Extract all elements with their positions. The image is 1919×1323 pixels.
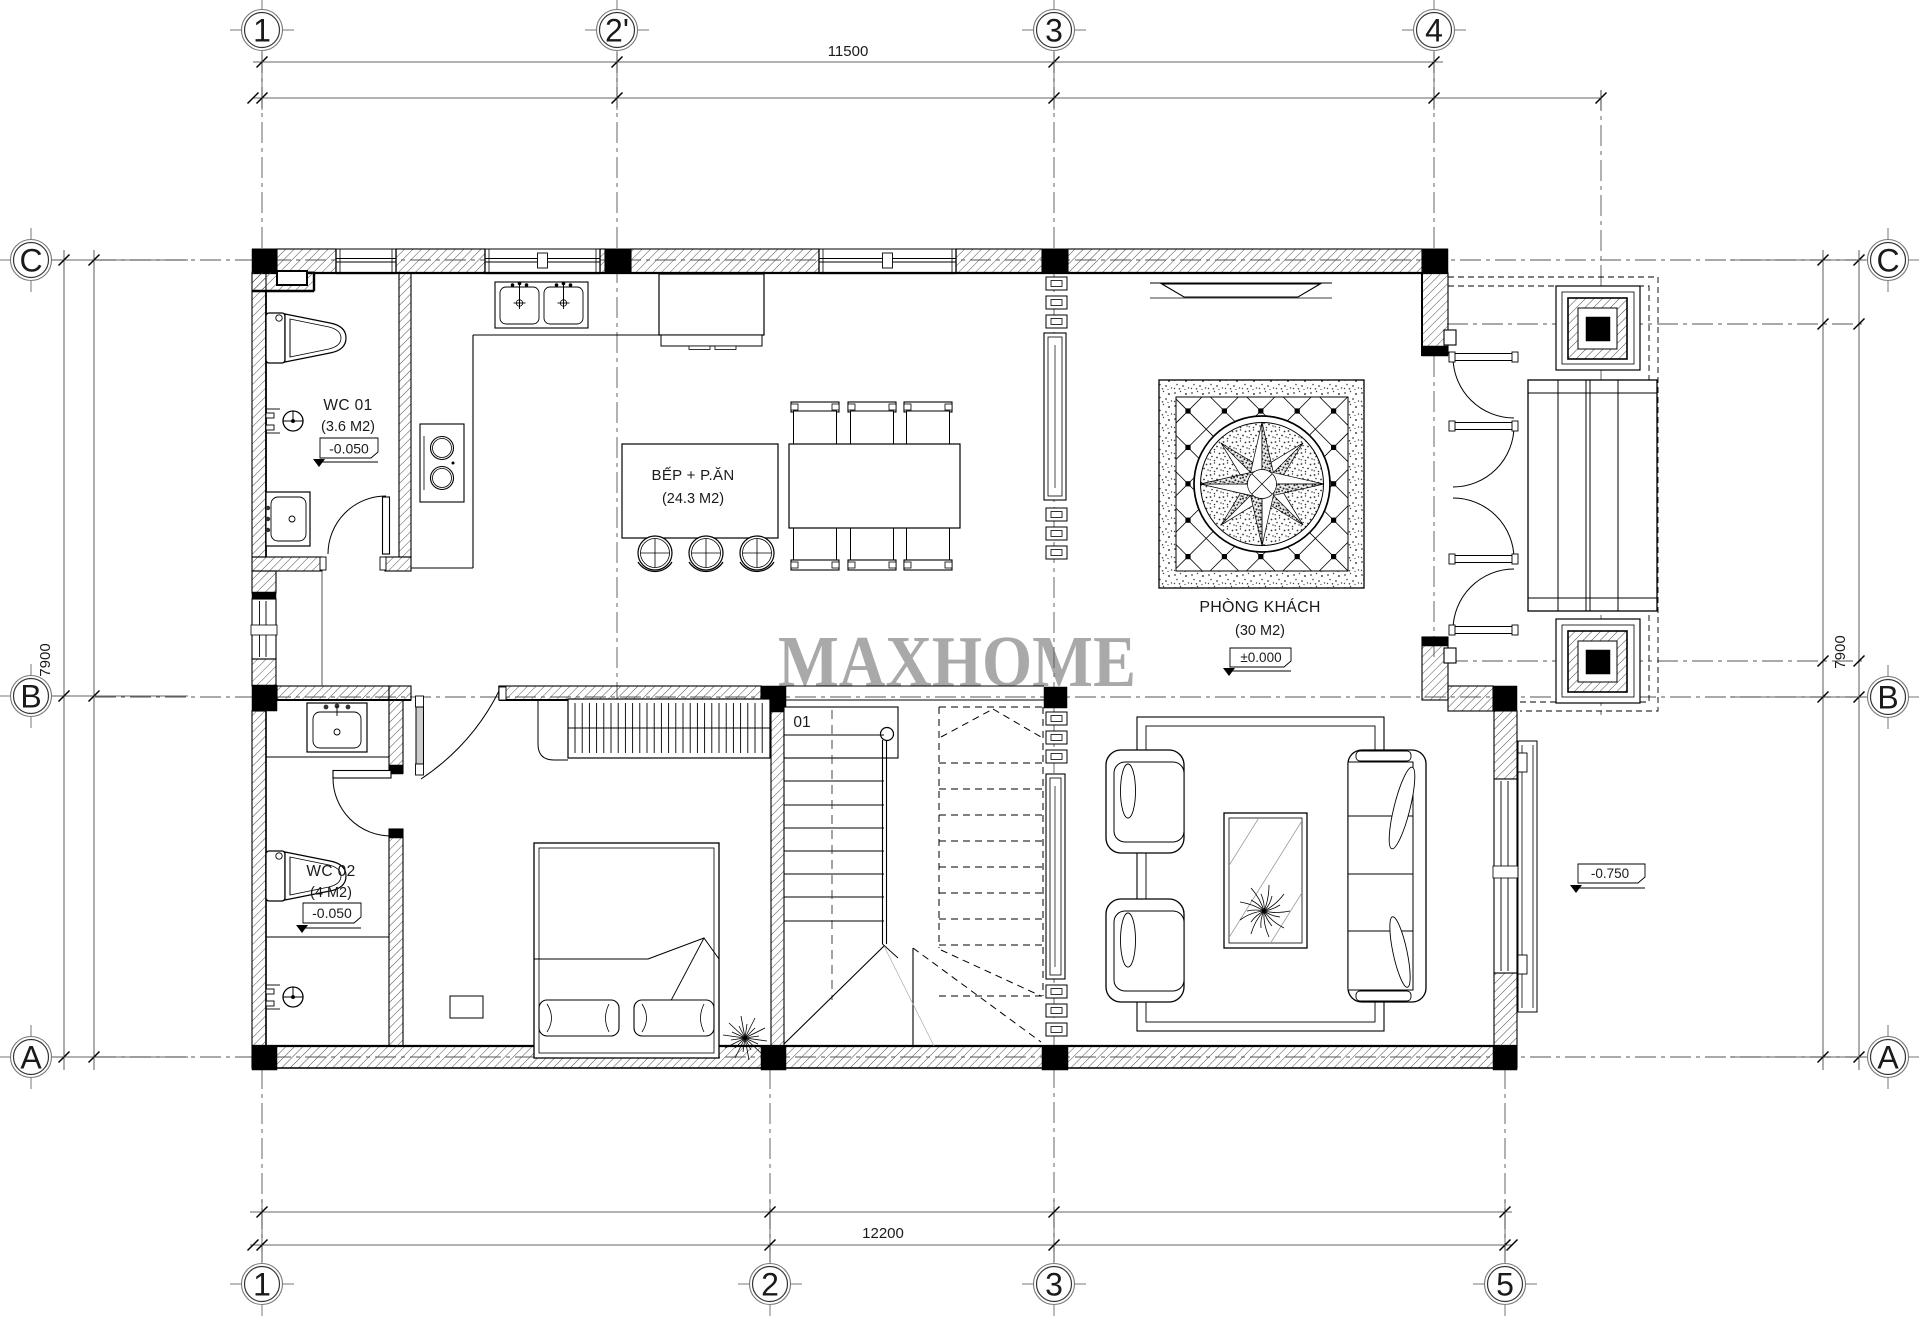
svg-text:A: A: [20, 1039, 42, 1075]
svg-text:2': 2': [605, 12, 629, 48]
svg-text:-0.750: -0.750: [1591, 866, 1629, 881]
svg-text:2: 2: [761, 1266, 779, 1302]
svg-text:B: B: [20, 678, 41, 714]
svg-text:C: C: [19, 242, 42, 278]
svg-text:-0.050: -0.050: [329, 441, 369, 457]
svg-text:1: 1: [253, 12, 271, 48]
svg-text:12200: 12200: [862, 1225, 904, 1242]
svg-text:PHÒNG KHÁCH: PHÒNG KHÁCH: [1199, 597, 1320, 616]
svg-text:(30 M2): (30 M2): [1235, 623, 1285, 639]
svg-text:(24.3 M2): (24.3 M2): [662, 491, 724, 507]
svg-text:7900: 7900: [1832, 635, 1849, 668]
svg-text:C: C: [1876, 242, 1899, 278]
svg-text:WC 01: WC 01: [323, 397, 372, 414]
svg-text:A: A: [1877, 1039, 1899, 1075]
svg-text:4: 4: [1425, 12, 1443, 48]
svg-text:3: 3: [1045, 1266, 1063, 1302]
svg-text:(4 M2): (4 M2): [310, 885, 352, 901]
svg-text:7900: 7900: [37, 643, 54, 676]
svg-text:-0.050: -0.050: [312, 905, 352, 921]
svg-text:±0.000: ±0.000: [1240, 650, 1281, 665]
svg-text:BẾP + P.ĂN: BẾP + P.ĂN: [652, 467, 735, 484]
svg-text:3: 3: [1045, 12, 1063, 48]
svg-text:01: 01: [793, 714, 810, 731]
svg-text:WC 02: WC 02: [306, 863, 355, 880]
svg-text:MAXHOME: MAXHOME: [778, 621, 1136, 702]
svg-text:5: 5: [1496, 1266, 1514, 1302]
svg-text:B: B: [1877, 679, 1898, 715]
svg-text:11500: 11500: [828, 43, 869, 60]
svg-text:(3.6 M2): (3.6 M2): [321, 419, 375, 435]
svg-text:1: 1: [253, 1266, 271, 1302]
